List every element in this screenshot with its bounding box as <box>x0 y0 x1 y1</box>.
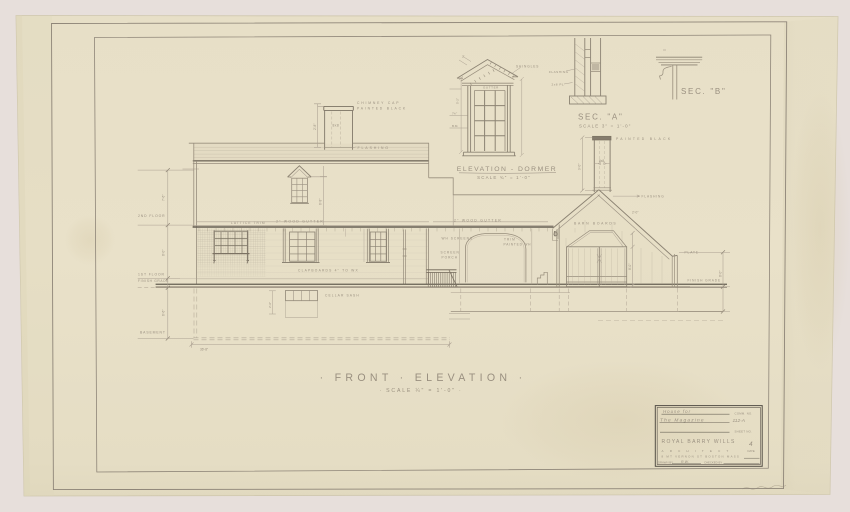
svg-text:PAINTED WH: PAINTED WH <box>504 242 532 246</box>
svg-text:1ST FLOOR: 1ST FLOOR <box>138 273 165 277</box>
svg-text:FLASHING: FLASHING <box>549 70 569 74</box>
svg-text:2" WOOD GUTTER: 2" WOOD GUTTER <box>454 218 502 222</box>
svg-text:CELLAR SASH: CELLAR SASH <box>325 293 360 297</box>
svg-text:5'-2": 5'-2" <box>456 98 460 104</box>
svg-text:SCREEN: SCREEN <box>441 251 460 255</box>
svg-text:ARCHITECT: ARCHITECT <box>662 449 735 453</box>
svg-text:GUTTER: GUTTER <box>483 86 499 90</box>
svg-text:2" WOOD GUTTER: 2" WOOD GUTTER <box>276 220 324 224</box>
svg-text:8x8: 8x8 <box>333 124 340 128</box>
svg-text:2": 2" <box>462 54 465 58</box>
svg-text:COMM. NO.: COMM. NO. <box>735 412 753 416</box>
svg-text:CHECKED BY: CHECKED BY <box>704 460 722 464</box>
svg-text:BASEMENT: BASEMENT <box>140 331 166 335</box>
svg-text:112-A: 112-A <box>733 418 745 424</box>
svg-text:8'-0": 8'-0" <box>162 250 166 256</box>
svg-text:PORCH: PORCH <box>442 255 459 259</box>
svg-text:PAINTED BLACK: PAINTED BLACK <box>357 106 407 110</box>
svg-text:ROYAL BARRY WILLS: ROYAL BARRY WILLS <box>662 439 736 445</box>
svg-text:House for: House for <box>663 409 691 414</box>
svg-text:7¾": 7¾" <box>452 111 457 115</box>
svg-text:2ND FLOOR: 2ND FLOOR <box>138 214 166 218</box>
svg-text:2x8 PL: 2x8 PL <box>552 83 565 87</box>
svg-text:4: 4 <box>749 441 753 448</box>
svg-text:7'-6": 7'-6" <box>162 195 166 201</box>
svg-text:2'-8": 2'-8" <box>313 124 317 130</box>
svg-text:CHIMNEY CAP: CHIMNEY CAP <box>357 101 400 105</box>
svg-text:SEC. "A": SEC. "A" <box>578 112 624 121</box>
svg-text:8'-0": 8'-0" <box>719 271 723 277</box>
svg-text:PAINTED BLACK: PAINTED BLACK <box>616 137 672 141</box>
svg-text:FLASHING: FLASHING <box>642 194 665 198</box>
svg-text:9'-0": 9'-0" <box>578 164 582 170</box>
svg-text:6'-8": 6'-8" <box>319 199 323 205</box>
svg-text:SEC. "B": SEC. "B" <box>681 87 727 96</box>
svg-text:8x8: 8x8 <box>599 159 604 163</box>
svg-text:FINISH GRADE: FINISH GRADE <box>688 279 721 283</box>
svg-text:2'-6": 2'-6" <box>268 302 272 308</box>
svg-text:FINISH GRADE: FINISH GRADE <box>138 279 169 283</box>
svg-text:2'-0": 2'-0" <box>632 211 638 215</box>
svg-text:PLATE: PLATE <box>685 250 699 254</box>
svg-text:TRIM: TRIM <box>504 238 516 242</box>
svg-text:8'-0": 8'-0" <box>628 264 632 270</box>
svg-text:DATE: DATE <box>748 449 755 453</box>
svg-text:FLASHING: FLASHING <box>358 146 390 150</box>
svg-text:CLAPBOARDS 4" TO WX: CLAPBOARDS 4" TO WX <box>298 268 359 272</box>
svg-text:8 MT VERNON ST BOSTON MASS: 8 MT VERNON ST BOSTON MASS <box>662 455 741 459</box>
svg-text:LATTICE TRIM: LATTICE TRIM <box>231 221 266 225</box>
svg-text:ELEVATION - DORMER: ELEVATION - DORMER <box>457 166 557 173</box>
svg-text:· FRONT · ELEVATION ·: · FRONT · ELEVATION · <box>320 372 527 384</box>
svg-text:6'-6": 6'-6" <box>162 310 166 316</box>
svg-text:B.M.: B.M. <box>452 124 458 128</box>
svg-text:WH SCREENS: WH SCREENS <box>442 236 474 240</box>
svg-text:SCALE ¾" = 1'-0": SCALE ¾" = 1'-0" <box>477 175 531 180</box>
svg-text:· SCALE ¼" = 1'-0" ·: · SCALE ¼" = 1'-0" · <box>379 388 462 394</box>
svg-text:SHINGLES: SHINGLES <box>516 64 539 68</box>
svg-text:SHEET NO.: SHEET NO. <box>735 430 753 434</box>
svg-text:SCALE 3" = 1'-0": SCALE 3" = 1'-0" <box>579 124 632 129</box>
svg-text:R.W.: R.W. <box>681 460 689 464</box>
svg-text:36'-8": 36'-8" <box>200 348 208 352</box>
svg-text:DRAWN BY: DRAWN BY <box>658 460 673 464</box>
svg-text:BARN BOARDS: BARN BOARDS <box>574 221 617 225</box>
